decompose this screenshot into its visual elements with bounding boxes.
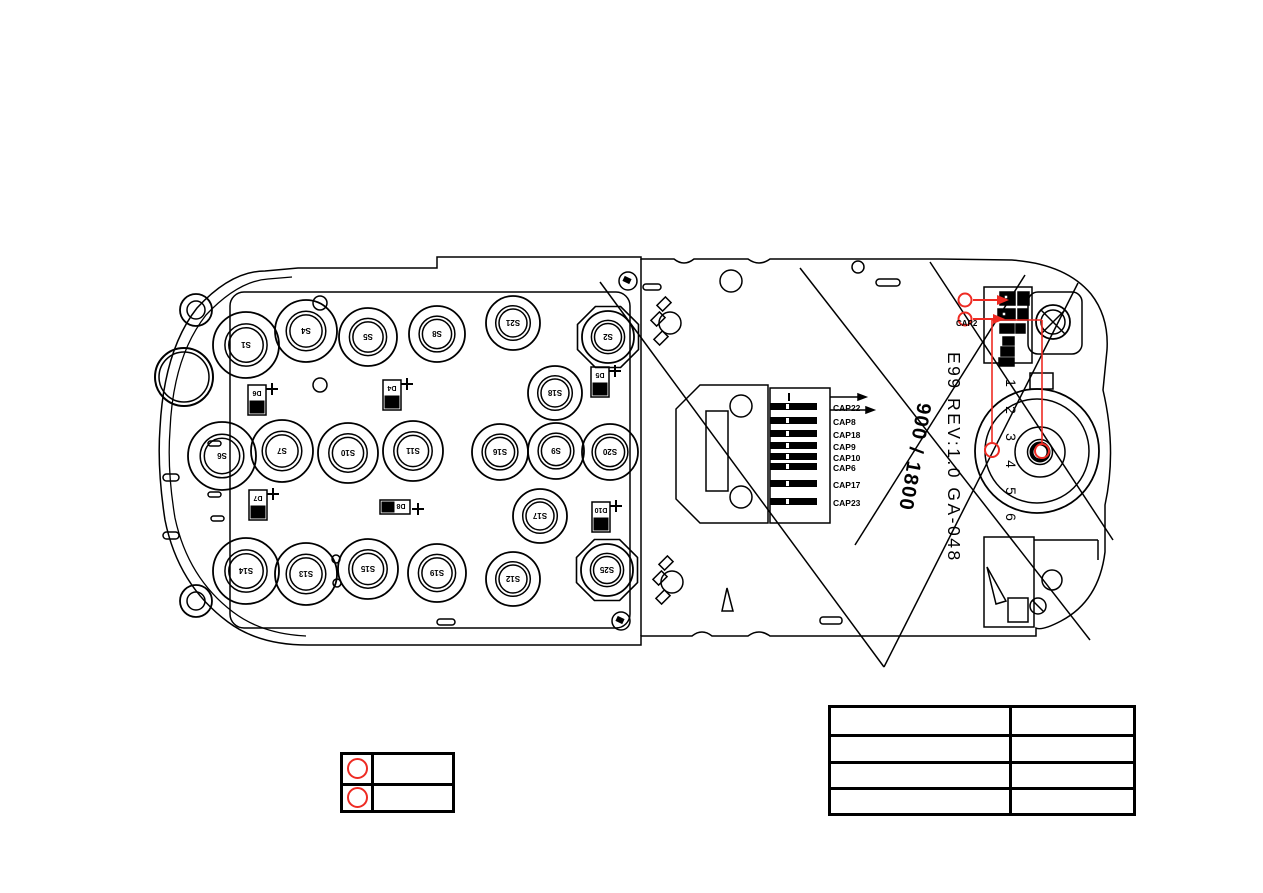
switch-label: S20 — [602, 447, 617, 456]
connector-pin-arrow — [866, 407, 874, 413]
switch-label: S19 — [429, 568, 444, 577]
switch-label: S2 — [603, 332, 613, 341]
test-point-cluster-bottom — [653, 556, 683, 604]
corner-screw-bottom-inner — [187, 592, 205, 610]
cap-label: CAP6 — [833, 463, 856, 473]
keypad-switch: S16 — [472, 424, 528, 480]
highlight-target — [985, 443, 999, 457]
pin-number: 2 — [1003, 406, 1019, 414]
pcb-assembly-drawing-page: S1S4S5S8S21S2S18S6S7S10S11S16S9S20S17S14… — [0, 0, 1263, 893]
small-hole — [313, 378, 327, 392]
legend-label-cell — [374, 755, 452, 783]
keypad-switch: S15 — [338, 539, 398, 599]
notes-table — [828, 705, 1136, 816]
keypad-switch: S19 — [408, 544, 466, 602]
keypad-switch: S11 — [383, 421, 443, 481]
notes-table-row — [831, 787, 1133, 813]
led-component: D7 — [249, 488, 279, 520]
side-hole-outer — [155, 348, 213, 406]
switch-label: S10 — [340, 448, 355, 457]
notes-cell — [1012, 737, 1133, 760]
legend-table — [340, 752, 455, 813]
notes-cell — [831, 790, 1012, 813]
switch-label: S18 — [547, 388, 562, 397]
switch-label: S12 — [505, 574, 520, 583]
switch-label: S1 — [241, 340, 251, 349]
pin-number: 4 — [1003, 460, 1019, 468]
keypad-switch: S6 — [188, 422, 256, 490]
legend-symbol-cell — [343, 755, 374, 783]
pointer-sail — [987, 567, 1006, 604]
bottom-slot — [437, 619, 455, 625]
switch-label: S13 — [298, 569, 313, 578]
cap-label: CAP18 — [833, 430, 861, 440]
led-label: D6 — [252, 389, 261, 396]
keypad-switch: S5 — [339, 308, 397, 366]
pin-number: 3 — [1003, 433, 1019, 441]
legend-row — [343, 755, 452, 783]
switch-label: S21 — [505, 318, 520, 327]
test-point-cluster-top — [651, 297, 681, 345]
switch-label: S5 — [363, 332, 373, 341]
notes-table-row — [831, 708, 1133, 734]
keypad-switch: S9 — [528, 423, 584, 479]
board-code-label: E99 REV:1.0 GA-048 — [944, 352, 964, 563]
led-label: D8 — [396, 502, 405, 509]
switch-label: S16 — [492, 447, 507, 456]
edge-slot — [163, 474, 179, 481]
cap-label: CAP17 — [833, 480, 861, 490]
keypad-switch: S7 — [251, 420, 313, 482]
switch-label: S25 — [599, 565, 614, 574]
fiducial-top — [619, 272, 661, 290]
notes-cell — [1012, 764, 1133, 787]
pin-number: 5 — [1003, 487, 1019, 495]
led-component: D5 — [591, 365, 621, 397]
connector-plate — [676, 385, 768, 523]
keypad-switch: S14 — [213, 538, 279, 604]
led-component: D6 — [248, 383, 278, 415]
led-label: D5 — [595, 371, 604, 378]
pin-number: 6 — [1003, 513, 1019, 521]
edge-slot — [876, 279, 900, 286]
section-line — [600, 282, 884, 667]
connector-cap-labels: CAP22CAP8CAP18CAP9CAP10CAP6CAP17CAP23 — [770, 393, 861, 508]
connector-bar — [770, 403, 817, 410]
small-hole — [720, 270, 742, 292]
keypad-switch: S8 — [409, 306, 465, 362]
cap-label: CAP8 — [833, 417, 856, 427]
screw-boss-top-right — [1028, 292, 1082, 354]
red-circle-marker — [347, 787, 368, 808]
keypad-switch: S10 — [318, 423, 378, 483]
switch-label: S17 — [532, 511, 547, 520]
keypad-switch: S13 — [275, 543, 337, 605]
connector-bar — [770, 430, 817, 437]
notes-cell — [831, 737, 1012, 760]
legend-row — [343, 783, 452, 811]
switch-label: S7 — [277, 446, 287, 455]
cap-label: CAP23 — [833, 498, 861, 508]
small-hole — [852, 261, 864, 273]
led-label: D4 — [387, 384, 396, 391]
keypad-switch: S18 — [528, 366, 582, 420]
keypad-switch: S25 — [577, 540, 638, 601]
notes-cell — [1012, 790, 1133, 813]
keypad-switch: S12 — [486, 552, 540, 606]
connector-pin-arrow — [858, 394, 866, 400]
keypad-switch: S21 — [486, 296, 540, 350]
switch-label: S9 — [551, 446, 561, 455]
notes-cell — [831, 708, 1012, 734]
connector-bar — [770, 498, 817, 505]
connector-bar — [770, 463, 817, 470]
switch-label: S14 — [238, 566, 253, 575]
connector-bar — [770, 417, 817, 424]
keypad-switch: S1 — [213, 312, 279, 378]
band-label: 900 / 1800 — [894, 401, 935, 513]
notes-table-row — [831, 734, 1133, 760]
connector-pin-numbers: 123456 — [1003, 379, 1019, 521]
switch-label: S8 — [432, 329, 442, 338]
edge-slot — [163, 532, 179, 539]
led-label: D10 — [594, 506, 607, 513]
switch-label: S4 — [301, 326, 311, 335]
inner-slot — [208, 492, 221, 497]
led-component: D8 — [380, 500, 424, 515]
bottom-slot — [820, 617, 842, 624]
connector-bar — [770, 453, 817, 460]
connector-bar — [770, 442, 817, 449]
notes-cell — [1012, 708, 1133, 734]
legend-label-cell — [374, 786, 452, 811]
keypad-switch: S17 — [513, 489, 567, 543]
led-label: D7 — [253, 494, 262, 501]
notes-cell — [831, 764, 1012, 787]
legend-symbol-cell — [343, 786, 374, 811]
battery-connector-area — [984, 537, 1098, 627]
connector-bar — [770, 480, 817, 487]
notes-table-row — [831, 761, 1133, 787]
cap2-label: CAP2 — [956, 319, 978, 328]
section-line — [855, 275, 1025, 545]
led-component: D10 — [592, 500, 622, 532]
cap-label: CAP9 — [833, 442, 856, 452]
connector-plate-hole — [730, 486, 752, 508]
led-component: D4 — [383, 378, 413, 410]
inner-slot — [211, 516, 224, 521]
pointer-sail — [722, 588, 733, 611]
keypad-switch: S4 — [275, 300, 337, 362]
switch-label: S6 — [217, 451, 227, 460]
switch-label: S15 — [360, 564, 375, 573]
connector-plate-hole — [730, 395, 752, 417]
highlight-ring — [959, 294, 972, 307]
red-circle-marker — [347, 758, 368, 779]
switch-label: S11 — [406, 446, 420, 455]
cap-label: CAP10 — [833, 453, 861, 463]
pin-number: 1 — [1003, 379, 1019, 387]
keypad-switches: S1S4S5S8S21S2S18S6S7S10S11S16S9S20S17S14… — [188, 296, 639, 606]
cap-label: CAP22 — [833, 403, 861, 413]
